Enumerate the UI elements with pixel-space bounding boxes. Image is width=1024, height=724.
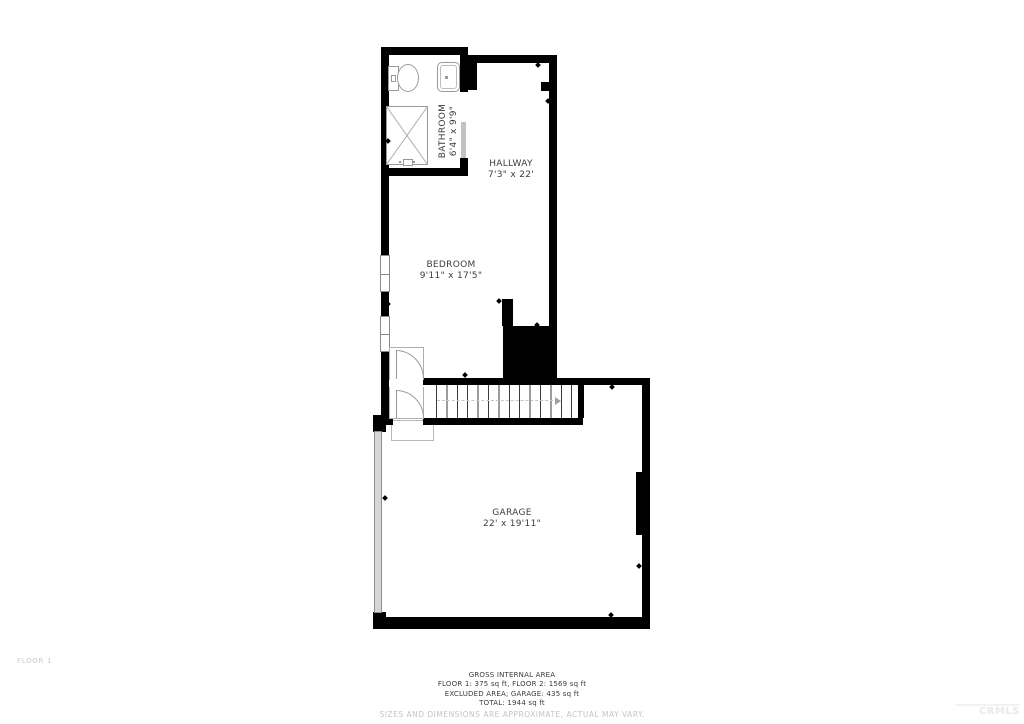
sink-faucet: [445, 76, 448, 79]
garage-door: [374, 431, 382, 613]
toilet-flush: [391, 75, 396, 82]
floor-label: FLOOR 1: [17, 657, 52, 665]
toilet-bowl: [397, 64, 419, 92]
tick-marker: [496, 298, 502, 304]
room-name: BATHROOM: [438, 104, 449, 158]
tick-marker: [382, 495, 388, 501]
wall-stair-head-neck: [502, 299, 513, 326]
wall-stairs-end: [578, 385, 584, 418]
window: [380, 255, 390, 292]
wall-bathroom-top: [381, 47, 468, 55]
room-label-bedroom: BEDROOM 9'11" x 17'5": [420, 260, 483, 282]
wall-garage-right: [642, 378, 650, 629]
crmls-watermark: CRMLS: [956, 704, 1020, 717]
room-name: HALLWAY: [488, 159, 534, 170]
room-name: BEDROOM: [420, 260, 483, 271]
tick-marker: [462, 372, 468, 378]
shower-knob: [399, 161, 401, 163]
room-dims: 6'4" x 9'9": [449, 104, 460, 158]
tick-marker: [609, 384, 615, 390]
shower: [386, 106, 428, 165]
area-excluded: EXCLUDED AREA; GARAGE: 435 sq ft: [0, 690, 1024, 699]
wall-bedroom-bottom-mid: [423, 378, 503, 385]
area-summary: GROSS INTERNAL AREA FLOOR 1: 375 sq ft, …: [0, 671, 1024, 720]
area-floors: FLOOR 1: 375 sq ft, FLOOR 2: 1569 sq ft: [0, 680, 1024, 689]
tick-marker: [636, 563, 642, 569]
sink-basin: [440, 65, 457, 89]
wall-corridor-bottom-right: [423, 418, 583, 425]
wall-stair-head-block: [503, 326, 557, 385]
wall-garage-left-stub-top: [373, 415, 386, 432]
wall-left-lower: [381, 351, 389, 425]
stairs-walkline: [437, 400, 553, 401]
wall-bathroom-bottom: [381, 168, 468, 176]
wall-garage-top: [557, 378, 650, 385]
disclaimer: SIZES AND DIMENSIONS ARE APPROXIMATE, AC…: [0, 710, 1024, 720]
room-label-hallway: HALLWAY 7'3" x 22': [488, 159, 534, 181]
wall-garage-bottom: [373, 617, 650, 629]
room-label-bathroom: BATHROOM 6'4" x 9'9": [438, 104, 460, 158]
room-dims: 22' x 19'11": [483, 519, 541, 530]
room-dims: 7'3" x 22': [488, 170, 534, 181]
tick-marker: [535, 62, 541, 68]
stairs-direction-arrow-icon: [555, 397, 561, 405]
shower-knob: [413, 161, 415, 163]
wall-hallway-top: [460, 55, 557, 63]
area-title: GROSS INTERNAL AREA: [0, 671, 1024, 680]
wall-stub-hallway-right: [541, 82, 549, 91]
wall-bathroom-right-upper: [460, 47, 468, 92]
wall-stub-hallway-left: [468, 63, 477, 90]
room-name: GARAGE: [483, 508, 541, 519]
wall-garage-right-pilaster: [636, 472, 643, 535]
wall-hallway-right: [549, 55, 557, 326]
bathroom-pocket-door: [461, 122, 466, 158]
room-label-garage: GARAGE 22' x 19'11": [483, 508, 541, 530]
wall-bedroom-bottom-left: [381, 378, 388, 385]
room-dims: 9'11" x 17'5": [420, 271, 483, 282]
sink: [437, 62, 460, 92]
window-mullion: [381, 334, 389, 335]
area-total: TOTAL: 1944 sq ft: [0, 699, 1024, 708]
window-mullion: [381, 274, 389, 275]
floor-plan-page: { "plan": { "floor_label": "FLOOR 1", "r…: [0, 0, 1024, 724]
shower-valve: [403, 159, 413, 166]
